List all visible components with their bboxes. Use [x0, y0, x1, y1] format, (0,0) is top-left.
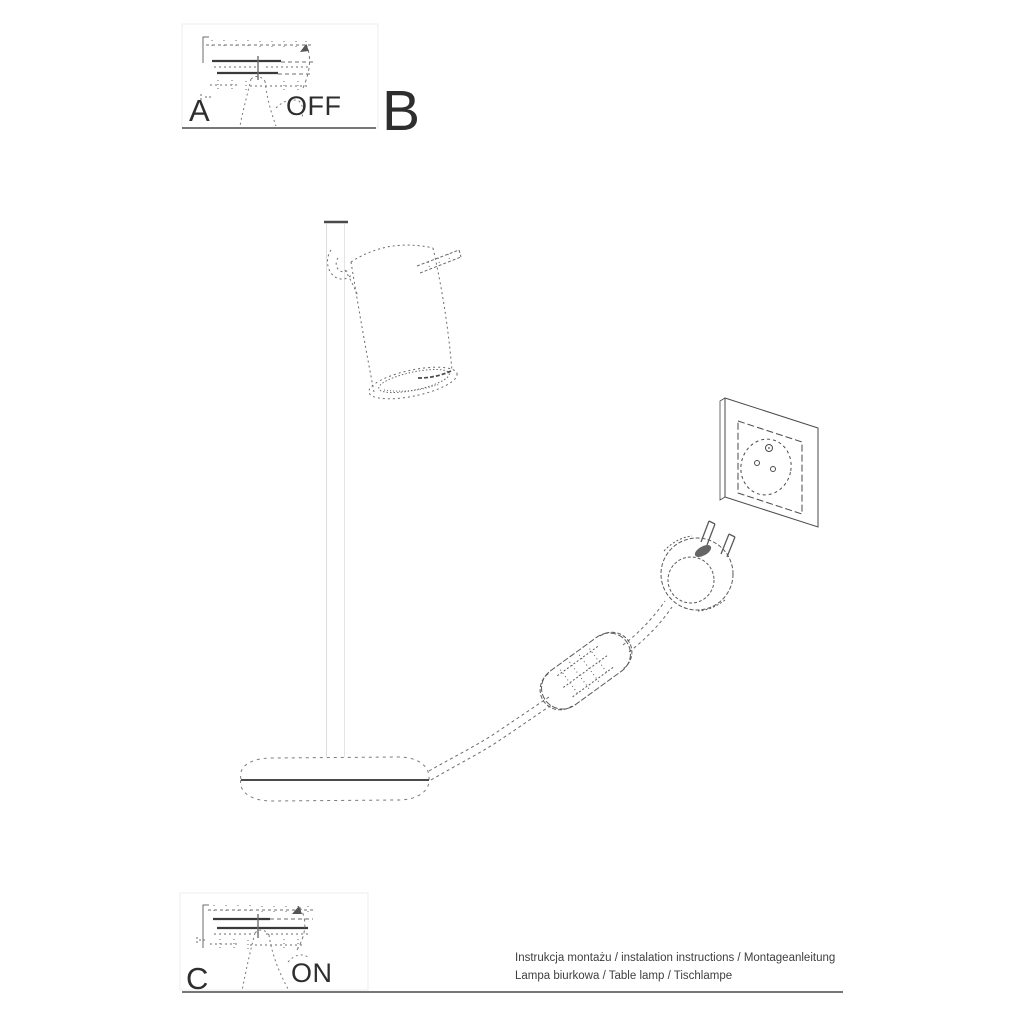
table-lamp-figure — [241, 222, 818, 801]
step-a-caption-off: OFF — [286, 91, 342, 121]
instruction-sheet: A OFF B — [0, 0, 1024, 1024]
socket-hole-left — [755, 461, 760, 466]
shade-adjust-rod-icon — [417, 250, 461, 273]
footer-instructions-line: Instrukcja montażu / instalation instruc… — [515, 952, 835, 964]
footer-product-line: Lampa biurkowa / Table lamp / Tischlampe — [515, 970, 732, 982]
plug-cord-grip — [693, 543, 713, 560]
step-a-panel: A OFF — [182, 24, 378, 128]
step-a-label: A — [189, 93, 210, 128]
lamp-pole — [324, 222, 348, 757]
step-c-label: C — [186, 961, 208, 996]
press-direction-arrow-icon — [300, 44, 310, 88]
wall-socket — [720, 398, 818, 527]
power-plug — [661, 521, 735, 611]
step-c-caption-on: ON — [291, 958, 333, 988]
instruction-illustration: A OFF B — [0, 0, 1024, 1024]
shade-pivot-joint — [327, 250, 358, 296]
power-cord — [429, 601, 672, 780]
lamp-shade — [351, 245, 460, 405]
step-c-panel: C ON — [180, 893, 368, 996]
footer-captions: Instrukcja montażu / instalation instruc… — [515, 952, 835, 982]
step-b-label: B — [382, 79, 420, 143]
lamp-base — [241, 757, 430, 801]
step-a-frame — [182, 24, 378, 128]
inline-cord-switch — [532, 623, 641, 718]
socket-hole-right — [771, 467, 776, 472]
